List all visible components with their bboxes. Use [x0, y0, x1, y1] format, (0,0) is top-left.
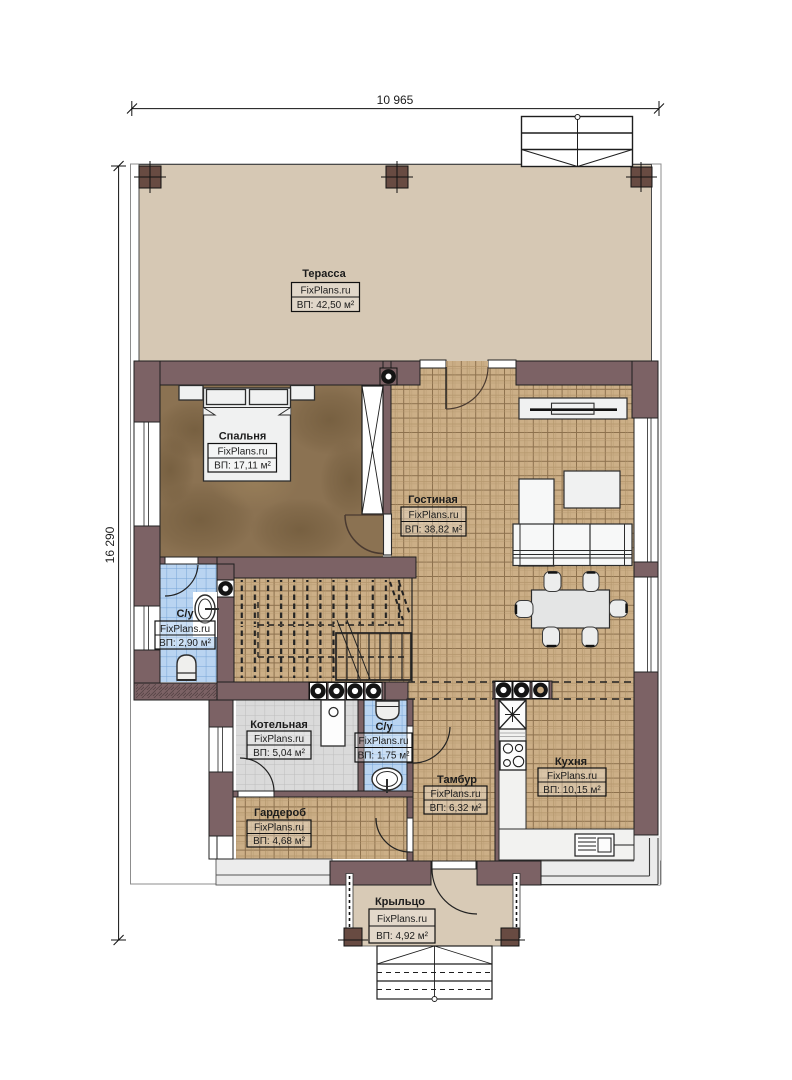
svg-text:10 965: 10 965 [377, 93, 414, 107]
svg-text:FixPlans.ru: FixPlans.ru [430, 789, 480, 800]
svg-text:ВП: 1,75 м²: ВП: 1,75 м² [358, 751, 411, 762]
svg-text:16 290: 16 290 [103, 526, 117, 563]
svg-text:ВП: 38,82 м²: ВП: 38,82 м² [405, 525, 463, 536]
svg-text:FixPlans.ru: FixPlans.ru [300, 286, 350, 297]
svg-text:ВП: 42,50 м²: ВП: 42,50 м² [297, 300, 355, 311]
svg-text:FixPlans.ru: FixPlans.ru [358, 736, 408, 747]
svg-text:Котельная: Котельная [250, 719, 308, 731]
svg-text:FixPlans.ru: FixPlans.ru [377, 914, 427, 925]
svg-text:Тамбур: Тамбур [437, 774, 477, 786]
svg-text:FixPlans.ru: FixPlans.ru [217, 447, 267, 458]
svg-text:Гардероб: Гардероб [254, 807, 306, 819]
svg-text:ВП: 4,68 м²: ВП: 4,68 м² [253, 836, 306, 847]
svg-text:Спальня: Спальня [219, 431, 267, 443]
svg-text:Гостиная: Гостиная [408, 494, 458, 506]
svg-text:ВП: 6,32 м²: ВП: 6,32 м² [430, 803, 483, 814]
svg-text:FixPlans.ru: FixPlans.ru [254, 734, 304, 745]
svg-text:FixPlans.ru: FixPlans.ru [160, 624, 210, 635]
svg-text:С/у: С/у [176, 608, 194, 620]
svg-text:FixPlans.ru: FixPlans.ru [254, 823, 304, 834]
svg-text:ВП: 10,15 м²: ВП: 10,15 м² [543, 785, 601, 796]
svg-text:Терасса: Терасса [302, 268, 346, 280]
svg-text:Крыльцо: Крыльцо [375, 896, 425, 908]
svg-text:С/у: С/у [375, 721, 393, 733]
svg-text:ВП: 17,11 м²: ВП: 17,11 м² [214, 461, 271, 472]
svg-text:ВП: 2,90 м²: ВП: 2,90 м² [159, 638, 212, 649]
svg-text:FixPlans.ru: FixPlans.ru [408, 510, 458, 521]
svg-text:ВП: 4,92 м²: ВП: 4,92 м² [376, 931, 429, 942]
svg-text:ВП: 5,04 м²: ВП: 5,04 м² [253, 748, 306, 759]
svg-text:FixPlans.ru: FixPlans.ru [547, 771, 597, 782]
svg-text:Кухня: Кухня [555, 756, 587, 768]
